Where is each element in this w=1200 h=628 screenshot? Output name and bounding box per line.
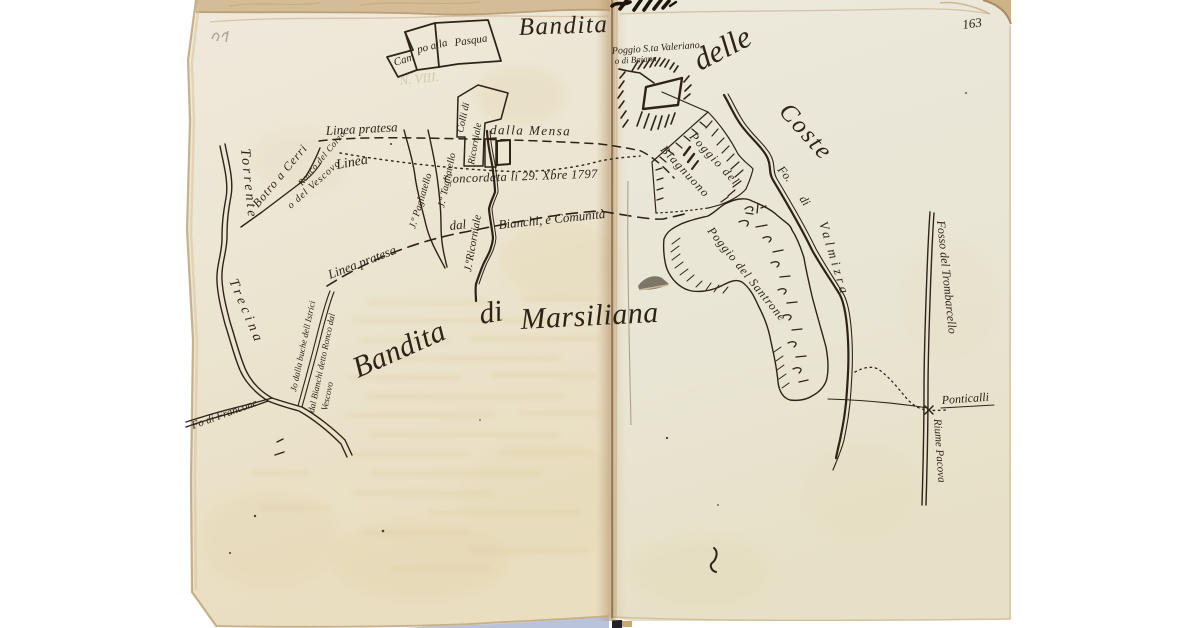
svg-text:Bandita: Bandita — [518, 11, 609, 41]
svg-text:dal: dal — [449, 216, 467, 233]
svg-text:dalla Mensa: dalla Mensa — [490, 122, 571, 138]
svg-text:163: 163 — [961, 14, 983, 32]
